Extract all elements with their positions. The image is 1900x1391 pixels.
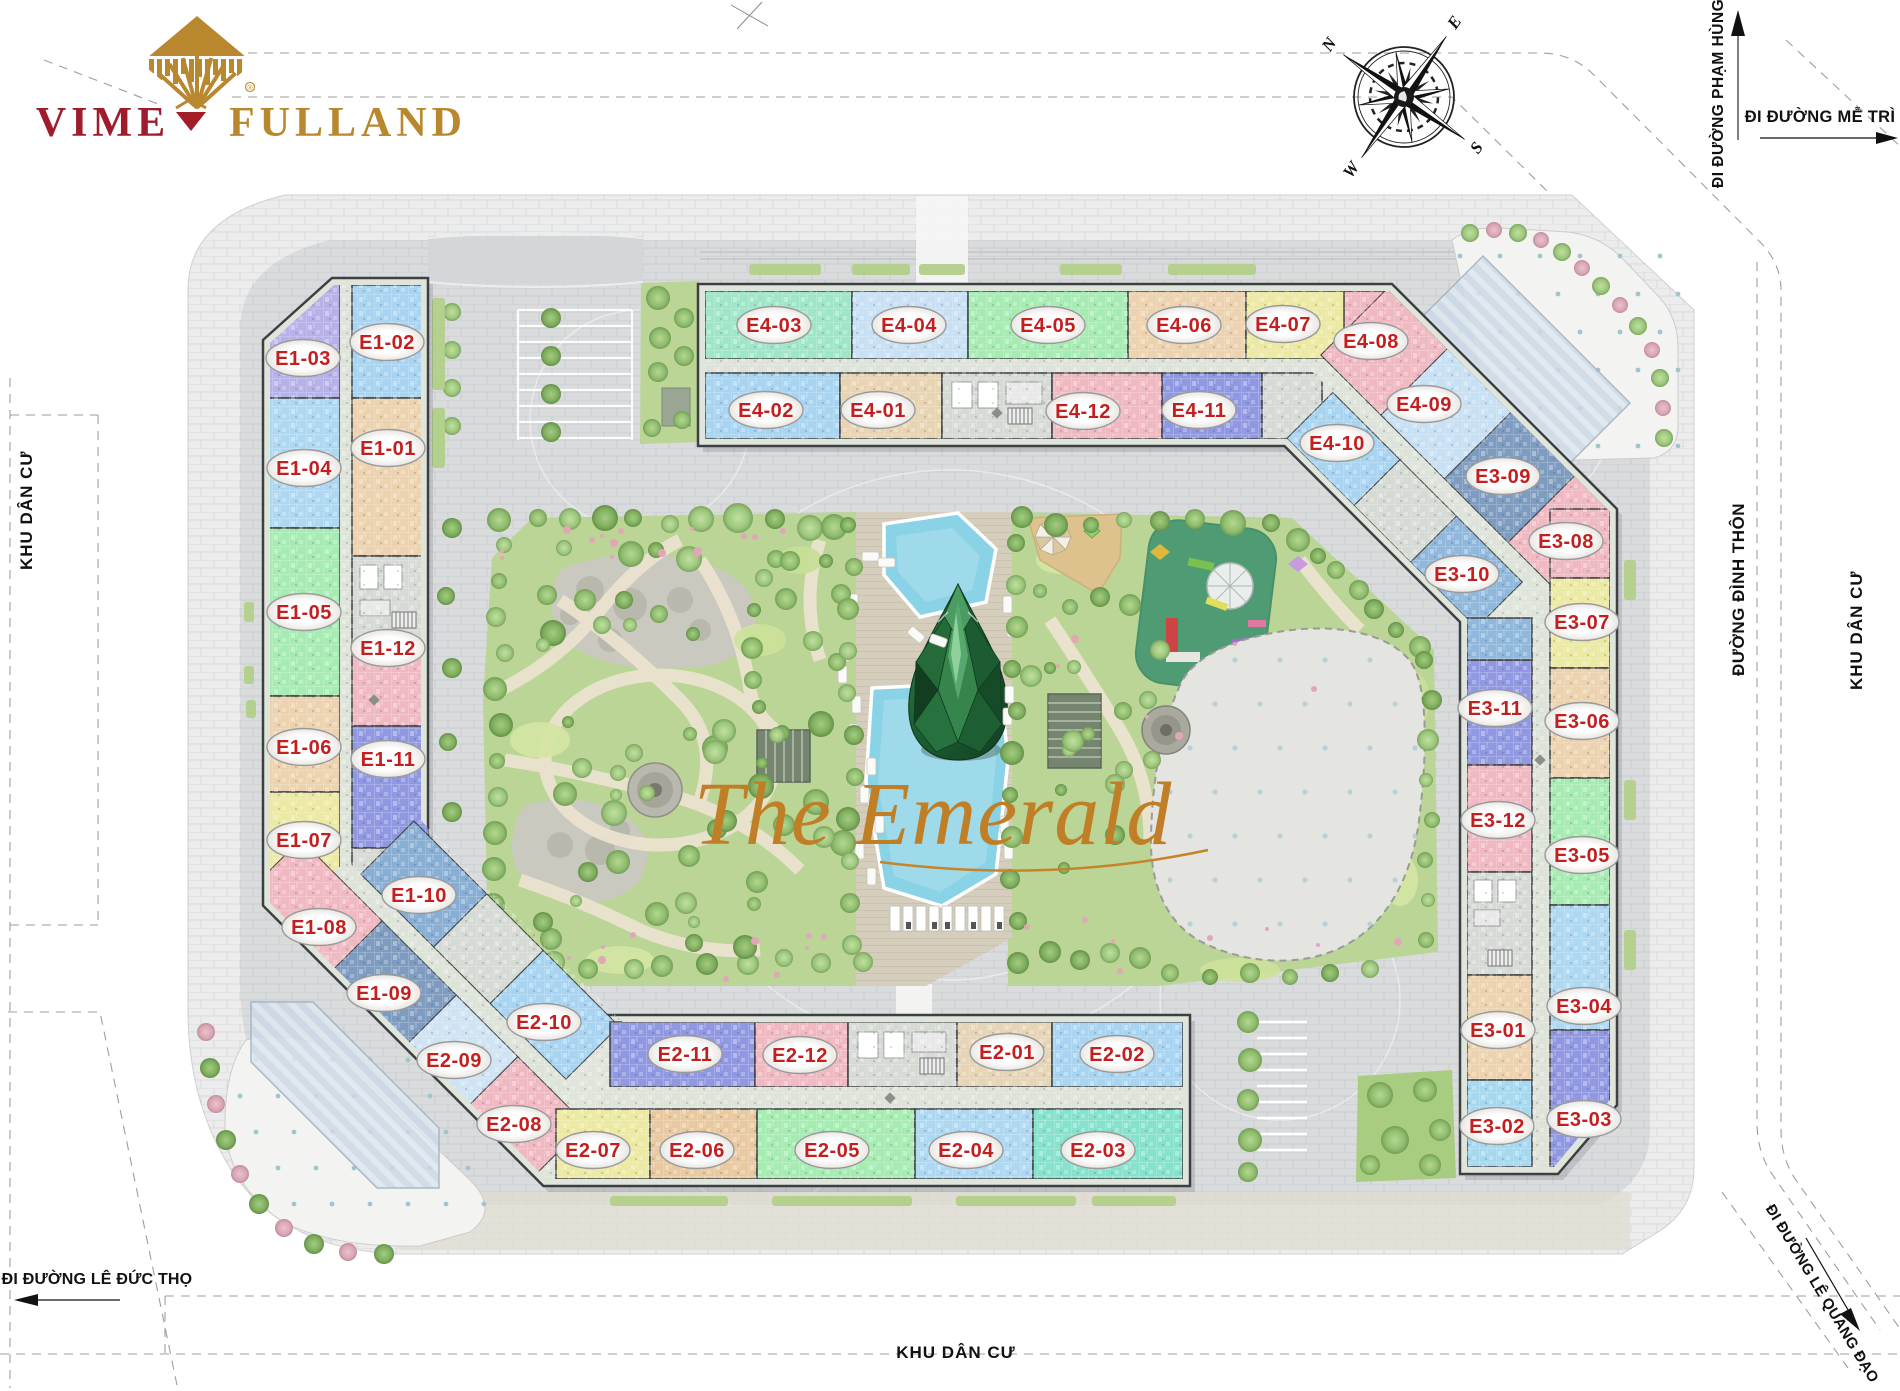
svg-text:E2-06: E2-06 [669,1140,725,1162]
svg-text:E3-08: E3-08 [1538,531,1594,553]
svg-text:E3-11: E3-11 [1468,698,1523,720]
svg-text:E1-12: E1-12 [360,638,416,660]
svg-text:E2-08: E2-08 [486,1114,542,1136]
svg-text:E3-09: E3-09 [1475,466,1531,488]
svg-text:E3-02: E3-02 [1469,1116,1525,1138]
svg-text:®: ® [247,84,253,92]
svg-text:E4-08: E4-08 [1343,331,1399,353]
svg-text:E4-04: E4-04 [881,315,937,337]
svg-text:E2-01: E2-01 [979,1042,1035,1064]
svg-text:E4-09: E4-09 [1396,394,1452,416]
svg-text:E1-01: E1-01 [360,438,416,460]
svg-text:ĐI ĐƯỜNG PHẠM HÙNG: ĐI ĐƯỜNG PHẠM HÙNG [1709,0,1727,188]
svg-text:E2-10: E2-10 [516,1012,572,1034]
svg-text:E3-07: E3-07 [1554,612,1610,634]
svg-text:E1-06: E1-06 [276,737,332,759]
svg-text:E3-03: E3-03 [1556,1109,1612,1131]
svg-text:E4-03: E4-03 [746,315,802,337]
svg-text:E4-05: E4-05 [1020,315,1076,337]
svg-text:E4-06: E4-06 [1156,315,1212,337]
svg-text:E1-08: E1-08 [291,917,347,939]
svg-text:E3-10: E3-10 [1434,564,1490,586]
svg-text:E4-01: E4-01 [850,400,906,422]
svg-text:E1-07: E1-07 [276,830,332,852]
svg-text:E2-05: E2-05 [804,1140,860,1162]
svg-text:ĐƯỜNG ĐÌNH THÔN: ĐƯỜNG ĐÌNH THÔN [1729,503,1748,676]
svg-text:E1-03: E1-03 [275,348,331,370]
svg-text:E3-12: E3-12 [1470,810,1526,832]
svg-text:E1-02: E1-02 [359,332,415,354]
svg-text:E4-07: E4-07 [1255,314,1311,336]
svg-text:E1-10: E1-10 [391,885,447,907]
svg-text:E3-04: E3-04 [1556,996,1612,1018]
svg-text:E4-02: E4-02 [738,400,794,422]
svg-text:E2-03: E2-03 [1070,1140,1126,1162]
svg-text:E1-09: E1-09 [356,983,412,1005]
svg-text:E2-12: E2-12 [772,1045,828,1067]
svg-text:E4-12: E4-12 [1055,401,1111,423]
svg-text:E2-09: E2-09 [426,1050,482,1072]
svg-text:E1-11: E1-11 [361,749,416,771]
svg-text:E2-02: E2-02 [1089,1044,1145,1066]
svg-text:E3-05: E3-05 [1554,845,1610,867]
svg-text:E4-11: E4-11 [1172,400,1227,422]
svg-text:KHU DÂN CƯ: KHU DÂN CƯ [1847,571,1866,691]
svg-text:E3-01: E3-01 [1470,1020,1526,1042]
svg-text:E1-05: E1-05 [276,602,332,624]
svg-text:ĐI ĐƯỜNG LÊ ĐỨC THỌ: ĐI ĐƯỜNG LÊ ĐỨC THỌ [2,1269,193,1288]
svg-text:VIME: VIME [36,100,170,146]
svg-text:The Emerald: The Emerald [694,765,1172,864]
svg-text:E2-11: E2-11 [658,1044,713,1066]
svg-text:E3-06: E3-06 [1554,711,1610,733]
svg-text:E2-04: E2-04 [938,1140,994,1162]
svg-text:E1-04: E1-04 [276,458,332,480]
svg-text:KHU DÂN CƯ: KHU DÂN CƯ [896,1343,1016,1362]
svg-text:KHU DÂN CƯ: KHU DÂN CƯ [17,451,36,571]
svg-text:ĐI ĐƯỜNG MỄ TRÌ: ĐI ĐƯỜNG MỄ TRÌ [1745,107,1896,126]
svg-text:E2-07: E2-07 [565,1140,621,1162]
svg-text:E4-10: E4-10 [1309,433,1365,455]
svg-text:FULLAND: FULLAND [229,100,467,146]
